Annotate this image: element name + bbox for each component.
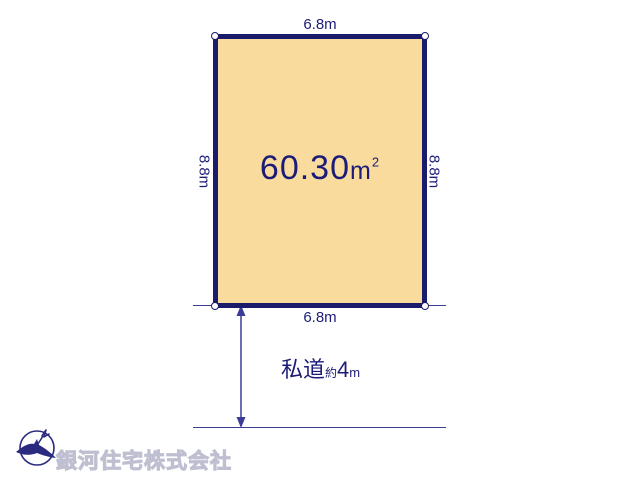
corner-marker-top-left: [211, 32, 219, 40]
road-width-unit: m: [349, 365, 360, 380]
area-value: 60.30: [260, 149, 350, 187]
road-name: 私道: [281, 357, 325, 382]
dimension-right: 8.8m: [426, 142, 443, 202]
area-unit: m: [350, 157, 372, 185]
company-watermark: 銀河住宅株式会社: [56, 445, 232, 475]
land-plot-diagram: 60.30m2 6.8m 6.8m 8.8m 8.8m 私道約4m 銀河住宅株式…: [0, 0, 640, 480]
north-compass-icon: [15, 423, 61, 469]
road-approx: 約: [325, 366, 337, 380]
plot-area-label: 60.30m2: [260, 149, 380, 188]
area-exponent: 2: [372, 154, 380, 169]
road-width-value: 4: [337, 357, 349, 382]
road-far-edge-line: [193, 427, 446, 428]
private-road-label: 私道約4m: [281, 352, 360, 384]
corner-marker-top-right: [421, 32, 429, 40]
land-plot: 60.30m2: [213, 34, 427, 308]
dimension-bottom: 6.8m: [213, 309, 427, 326]
dimension-left: 8.8m: [196, 142, 213, 202]
dimension-top: 6.8m: [213, 16, 427, 33]
